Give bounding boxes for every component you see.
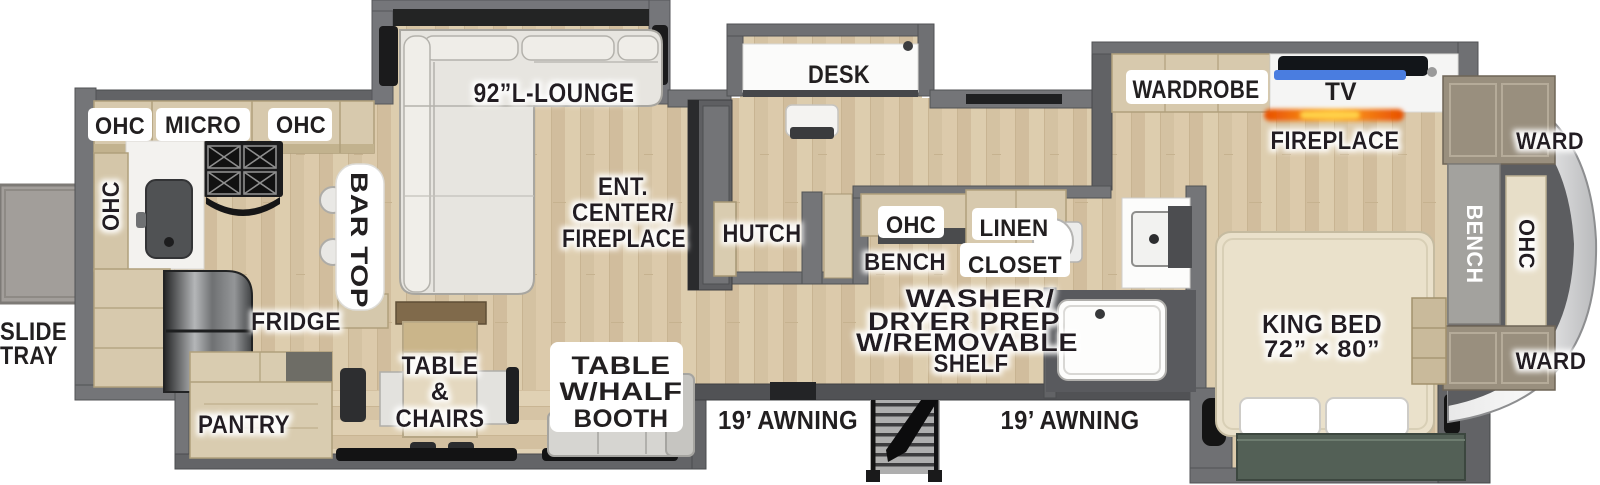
svg-text:19’ AWNING: 19’ AWNING — [718, 405, 858, 435]
svg-text:BOOTH: BOOTH — [574, 405, 669, 433]
svg-text:CLOSET: CLOSET — [968, 252, 1062, 279]
svg-text:KING BED: KING BED — [1262, 309, 1382, 339]
svg-text:&: & — [431, 378, 449, 406]
svg-text:FIREPLACE: FIREPLACE — [1271, 127, 1400, 155]
svg-text:BENCH: BENCH — [1462, 205, 1487, 284]
svg-text:OHC: OHC — [98, 181, 125, 231]
svg-text:19’ AWNING: 19’ AWNING — [1001, 405, 1140, 435]
svg-text:WARD: WARD — [1516, 348, 1587, 375]
svg-text:TV: TV — [1325, 78, 1357, 106]
svg-text:MICRO: MICRO — [165, 112, 241, 139]
svg-text:72” × 80”: 72” × 80” — [1264, 336, 1380, 363]
svg-text:ENT.: ENT. — [598, 173, 648, 201]
svg-text:BENCH: BENCH — [864, 249, 946, 276]
svg-text:PANTRY: PANTRY — [198, 411, 290, 439]
svg-text:CENTER/: CENTER/ — [572, 199, 674, 227]
svg-text:TABLE: TABLE — [402, 352, 479, 380]
svg-text:SHELF: SHELF — [934, 350, 1009, 378]
svg-text:TABLE: TABLE — [572, 352, 671, 380]
svg-text:WARDROBE: WARDROBE — [1133, 76, 1260, 104]
svg-text:WARD: WARD — [1516, 128, 1584, 155]
svg-text:92”L-LOUNGE: 92”L-LOUNGE — [474, 78, 635, 108]
svg-text:OHC: OHC — [276, 112, 326, 139]
svg-text:OHC: OHC — [886, 212, 936, 239]
svg-text:HUTCH: HUTCH — [723, 220, 802, 248]
svg-text:DESK: DESK — [808, 61, 870, 89]
svg-text:OHC: OHC — [1514, 219, 1539, 269]
svg-text:FRIDGE: FRIDGE — [251, 308, 341, 336]
svg-text:W/HALF: W/HALF — [560, 378, 683, 406]
svg-text:BAR TOP: BAR TOP — [345, 172, 372, 308]
svg-text:TRAY: TRAY — [0, 342, 58, 370]
svg-text:FIREPLACE: FIREPLACE — [562, 225, 686, 253]
svg-text:CHAIRS: CHAIRS — [396, 405, 485, 433]
svg-text:OHC: OHC — [95, 113, 145, 140]
svg-text:LINEN: LINEN — [980, 215, 1049, 242]
